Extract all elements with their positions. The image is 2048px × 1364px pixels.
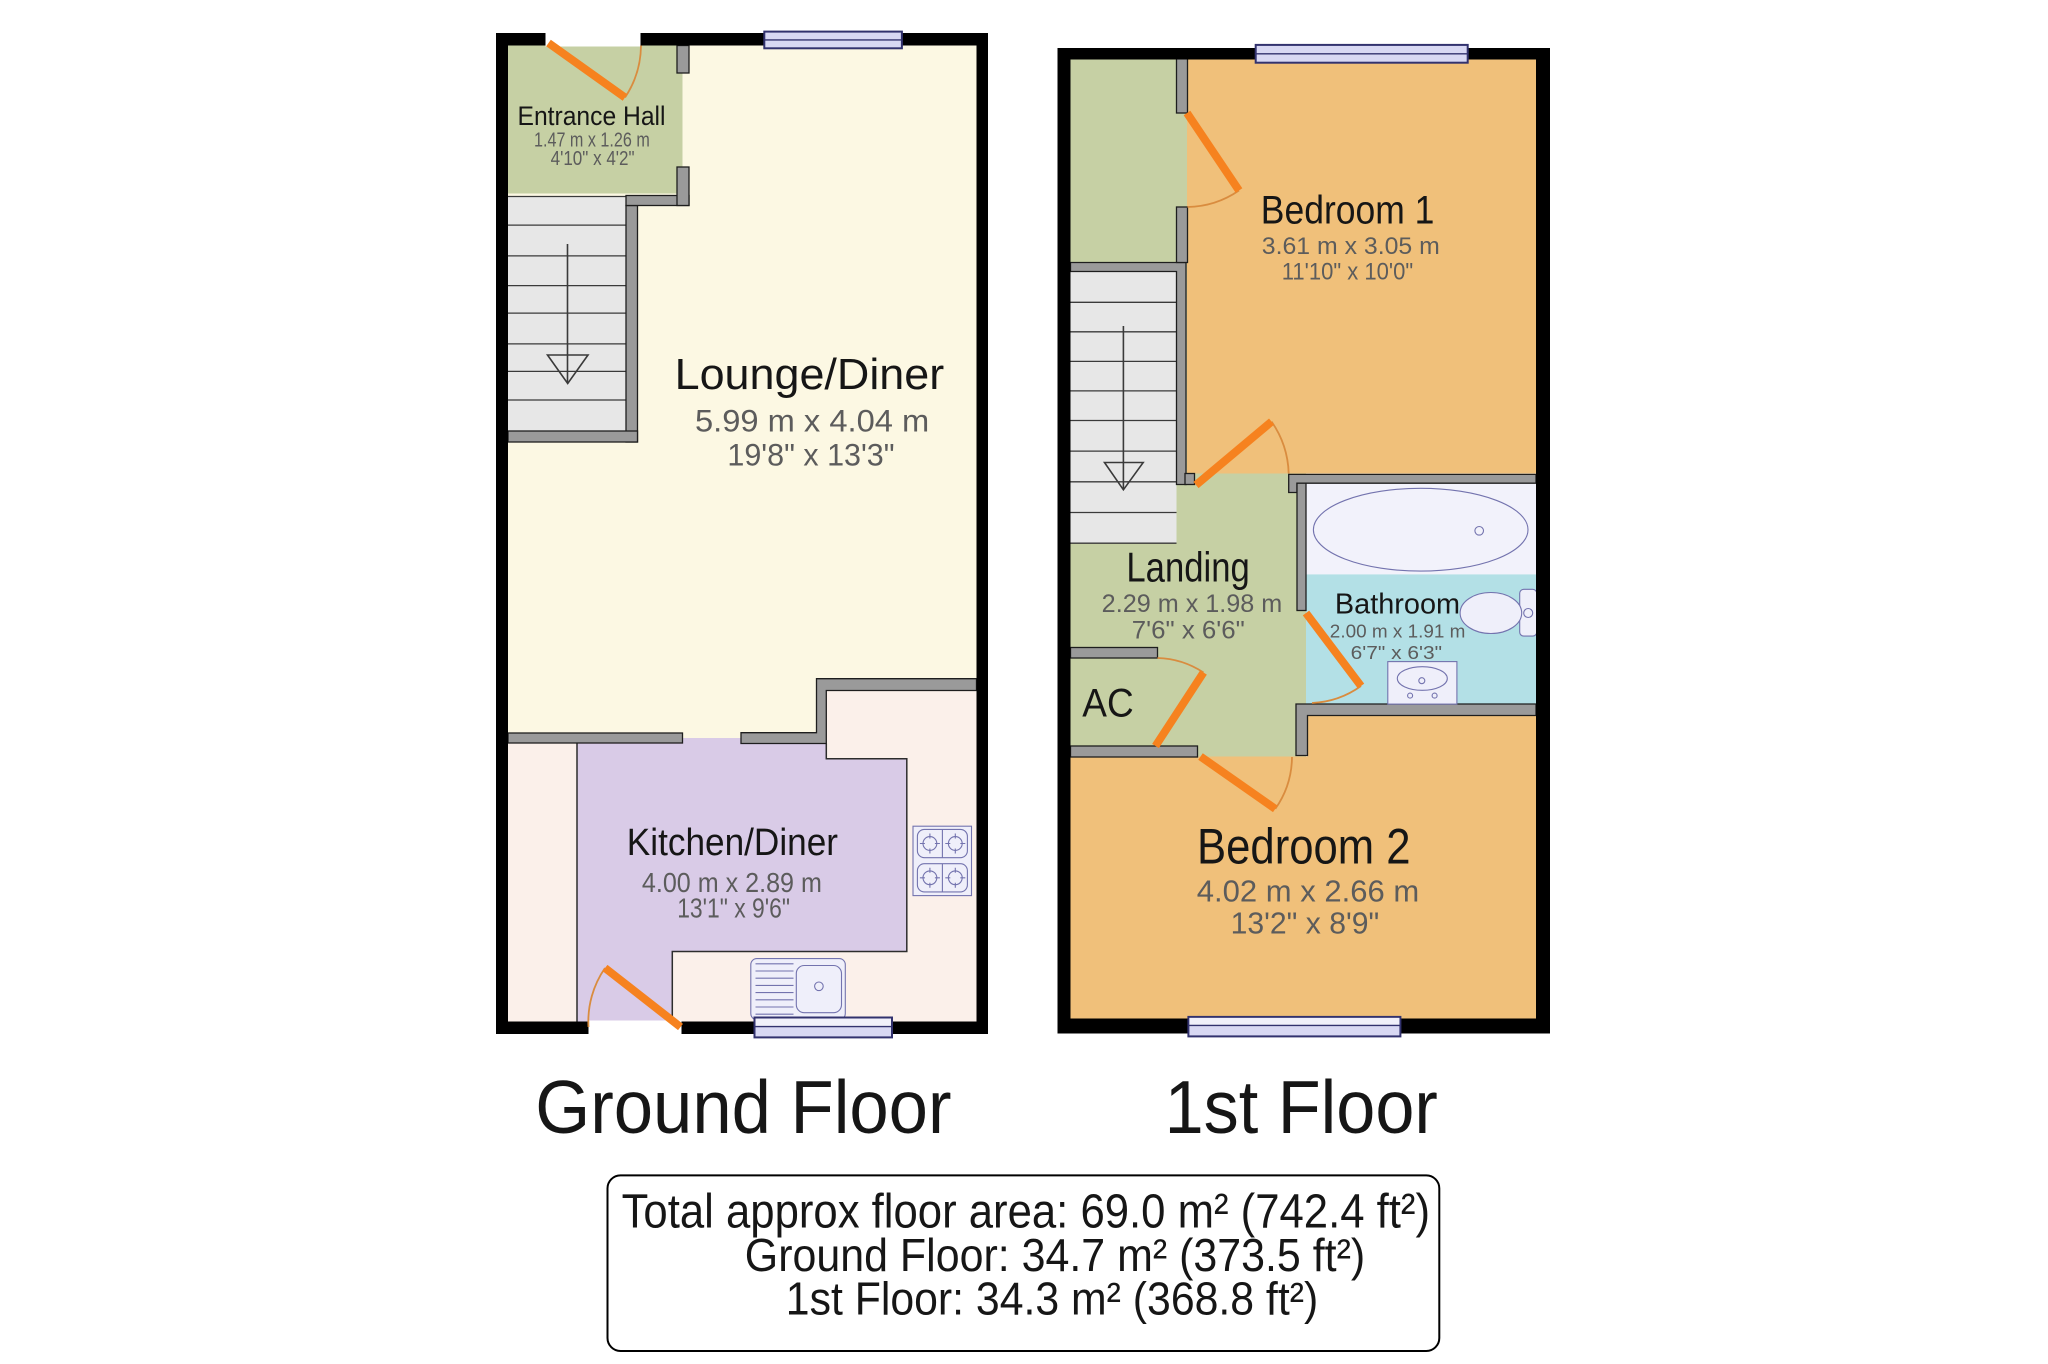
svg-text:5.99 m x 4.04 m: 5.99 m x 4.04 m [695,402,929,438]
svg-text:2.29 m x 1.98 m: 2.29 m x 1.98 m [1102,590,1283,618]
svg-text:4.02 m x 2.66 m: 4.02 m x 2.66 m [1197,874,1419,909]
svg-text:13'2" x 8'9": 13'2" x 8'9" [1231,906,1380,941]
svg-text:19'8" x 13'3": 19'8" x 13'3" [727,437,894,473]
svg-text:7'6" x 6'6": 7'6" x 6'6" [1132,616,1245,644]
svg-text:Bedroom 2: Bedroom 2 [1197,818,1411,874]
svg-text:1st Floor: 34.3 m² (368.8 ft²): 1st Floor: 34.3 m² (368.8 ft²) [786,1272,1318,1324]
svg-text:13'1" x 9'6": 13'1" x 9'6" [677,893,790,924]
svg-text:Entrance Hall: Entrance Hall [518,101,666,131]
svg-text:Kitchen/Diner: Kitchen/Diner [627,822,839,864]
svg-text:Ground Floor: Ground Floor [535,1065,951,1149]
svg-text:Lounge/Diner: Lounge/Diner [675,350,945,399]
svg-text:2.00 m x 1.91 m: 2.00 m x 1.91 m [1330,621,1466,642]
svg-text:AC: AC [1082,681,1133,725]
svg-text:4'10" x 4'2": 4'10" x 4'2" [551,148,635,170]
svg-text:3.61 m x 3.05 m: 3.61 m x 3.05 m [1262,233,1440,260]
svg-text:Bedroom 1: Bedroom 1 [1261,188,1435,232]
svg-text:Landing: Landing [1126,544,1249,591]
svg-text:Bathroom: Bathroom [1335,588,1460,620]
svg-text:11'10" x 10'0": 11'10" x 10'0" [1282,259,1413,286]
svg-text:1st Floor: 1st Floor [1165,1065,1438,1149]
svg-text:6'7" x 6'3": 6'7" x 6'3" [1351,642,1442,663]
